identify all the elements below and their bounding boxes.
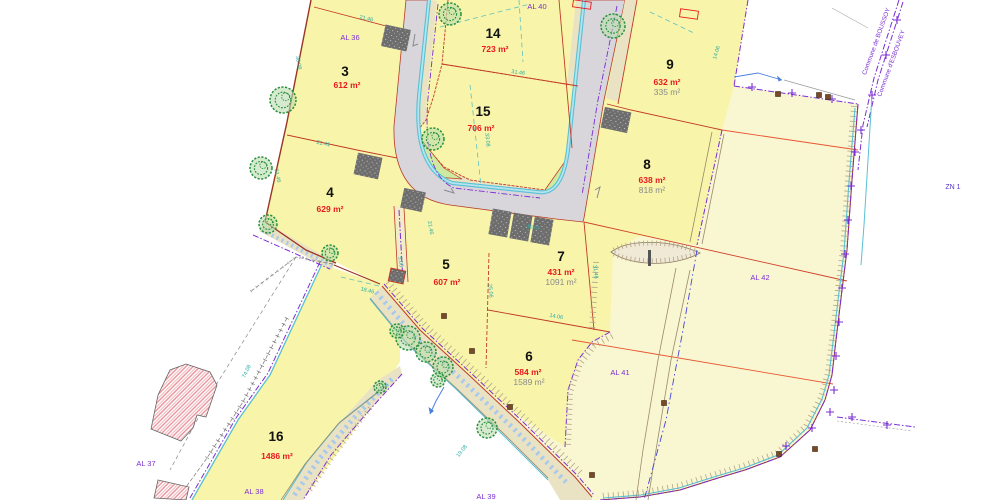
svg-text:335 m²: 335 m² <box>654 87 681 97</box>
svg-text:5: 5 <box>442 257 450 272</box>
svg-text:8: 8 <box>643 157 651 172</box>
svg-text:1589 m²: 1589 m² <box>513 377 544 387</box>
svg-text:1091 m²: 1091 m² <box>545 277 576 287</box>
svg-text:818 m²: 818 m² <box>639 185 666 195</box>
svg-text:612 m²: 612 m² <box>334 80 361 90</box>
svg-text:723 m²: 723 m² <box>482 44 509 54</box>
svg-text:3: 3 <box>341 64 349 79</box>
svg-text:629 m²: 629 m² <box>317 204 344 214</box>
svg-text:AL 37: AL 37 <box>136 459 155 468</box>
svg-text:AL 39: AL 39 <box>476 492 495 500</box>
svg-text:14: 14 <box>485 26 501 41</box>
svg-text:584 m²: 584 m² <box>515 367 542 377</box>
svg-text:AL 36: AL 36 <box>340 33 359 42</box>
svg-text:AL 41: AL 41 <box>610 368 629 377</box>
svg-text:AL 38: AL 38 <box>244 487 263 496</box>
svg-text:706 m²: 706 m² <box>468 123 495 133</box>
svg-text:431 m²: 431 m² <box>548 267 575 277</box>
svg-text:AL 40: AL 40 <box>527 2 546 11</box>
svg-text:15: 15 <box>475 104 491 119</box>
svg-text:638 m²: 638 m² <box>639 175 666 185</box>
svg-text:AL 42: AL 42 <box>750 273 769 282</box>
svg-text:6: 6 <box>525 349 533 364</box>
svg-text:9: 9 <box>666 57 674 72</box>
svg-text:16: 16 <box>268 429 284 444</box>
svg-text:ZN 1: ZN 1 <box>945 184 960 191</box>
svg-text:7: 7 <box>557 249 565 264</box>
svg-text:4: 4 <box>326 185 334 200</box>
svg-text:607 m²: 607 m² <box>434 277 461 287</box>
svg-text:1486 m²: 1486 m² <box>261 451 293 461</box>
svg-text:632 m²: 632 m² <box>654 77 681 87</box>
